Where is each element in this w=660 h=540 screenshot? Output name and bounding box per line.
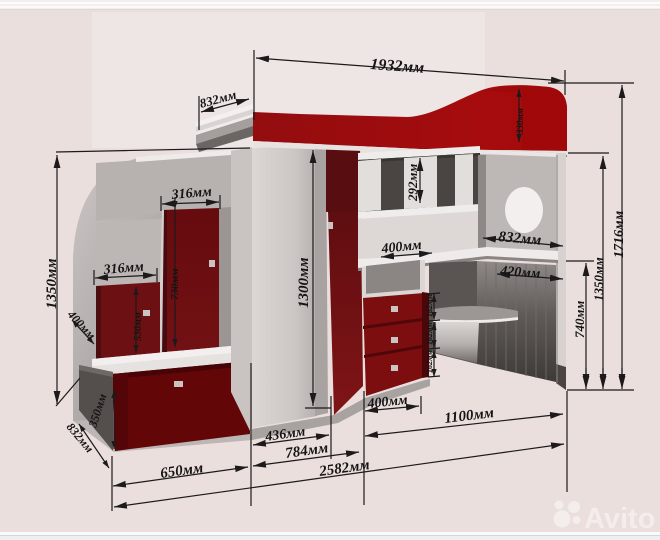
svg-text:330мм: 330мм — [515, 108, 525, 135]
svg-text:1350мм: 1350мм — [44, 258, 60, 309]
svg-text:162мм: 162мм — [425, 350, 434, 373]
svg-text:1716мм: 1716мм — [612, 210, 627, 258]
svg-text:162мм: 162мм — [425, 322, 434, 345]
svg-text:730мм: 730мм — [169, 268, 181, 300]
svg-text:420мм: 420мм — [499, 264, 542, 282]
svg-text:1300мм: 1300мм — [296, 257, 312, 308]
svg-text:162мм: 162мм — [425, 294, 434, 317]
svg-text:530мм: 530мм — [133, 312, 144, 341]
svg-text:740мм: 740мм — [572, 301, 587, 338]
svg-text:292мм: 292мм — [405, 164, 420, 202]
svg-text:1350мм: 1350мм — [591, 257, 606, 301]
svg-text:Avito: Avito — [584, 503, 655, 535]
